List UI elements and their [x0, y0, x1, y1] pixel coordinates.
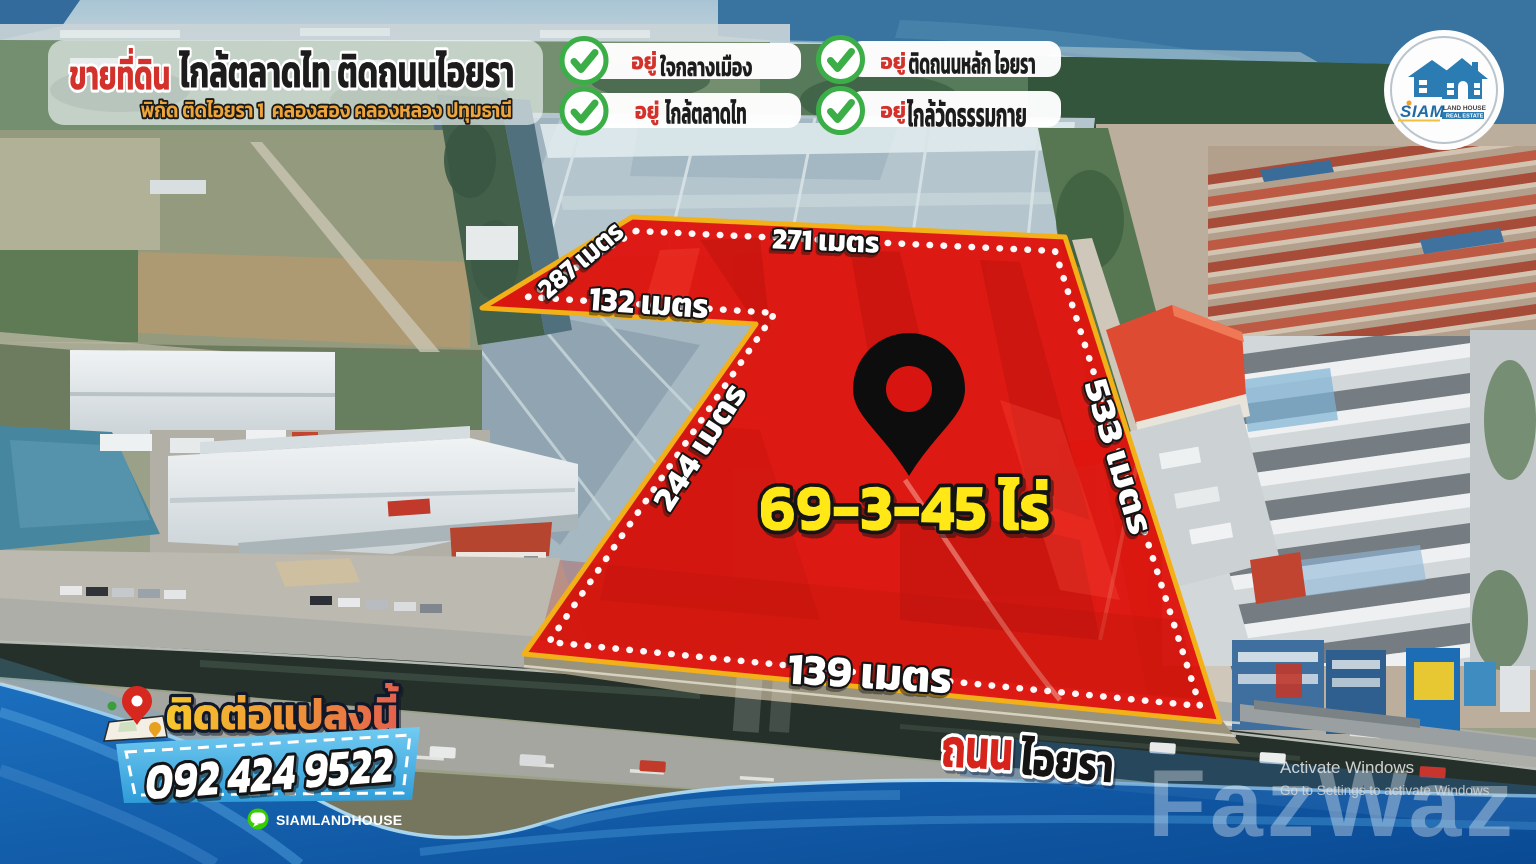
svg-text:Go to Settings to activate Win: Go to Settings to activate Windows	[1280, 783, 1490, 798]
svg-text:Activate Windows: Activate Windows	[1280, 758, 1414, 777]
svg-text:SIAM: SIAM	[1400, 102, 1445, 121]
svg-text:SIAMLANDHOUSE: SIAMLANDHOUSE	[276, 812, 402, 828]
svg-text:REAL ESTATE: REAL ESTATE	[1446, 114, 1484, 120]
svg-text:LAND HOUSE: LAND HOUSE	[1443, 105, 1487, 112]
